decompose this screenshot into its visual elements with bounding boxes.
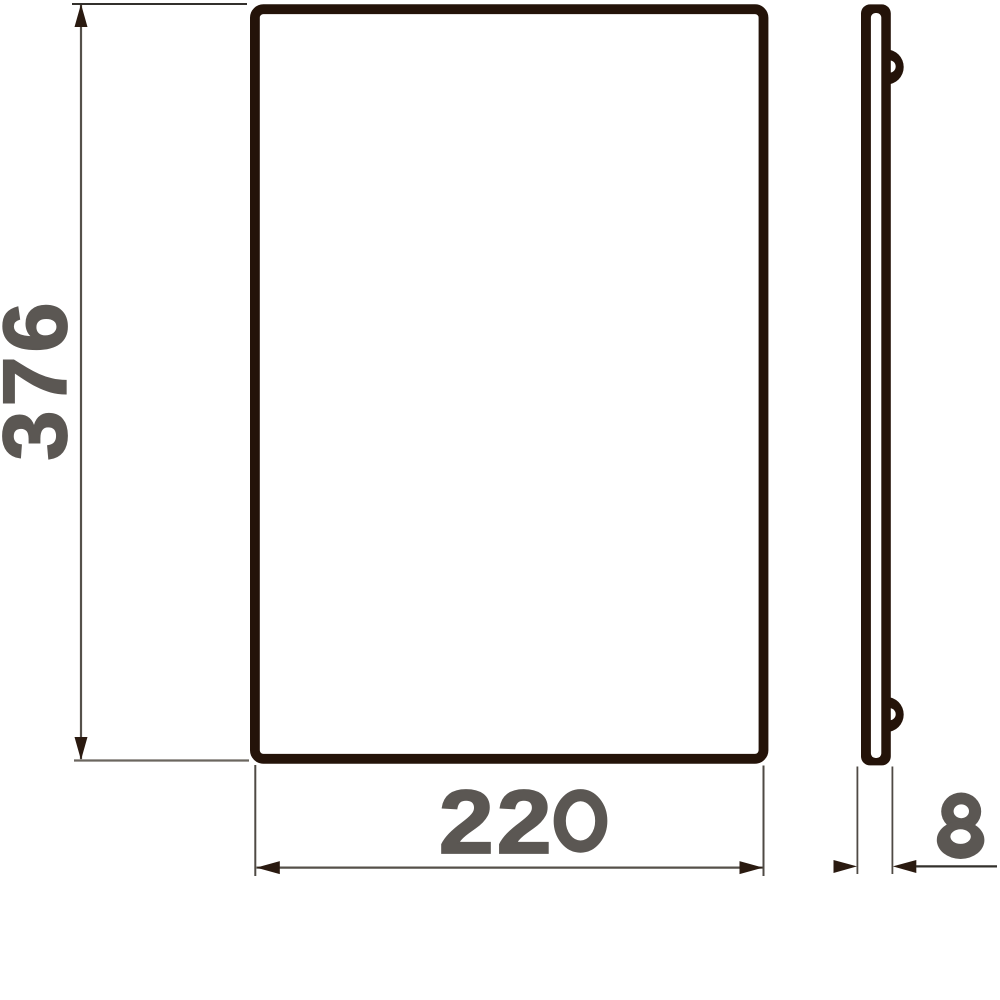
svg-text:376: 376 — [0, 298, 86, 460]
svg-text:22: 22 — [439, 772, 555, 873]
